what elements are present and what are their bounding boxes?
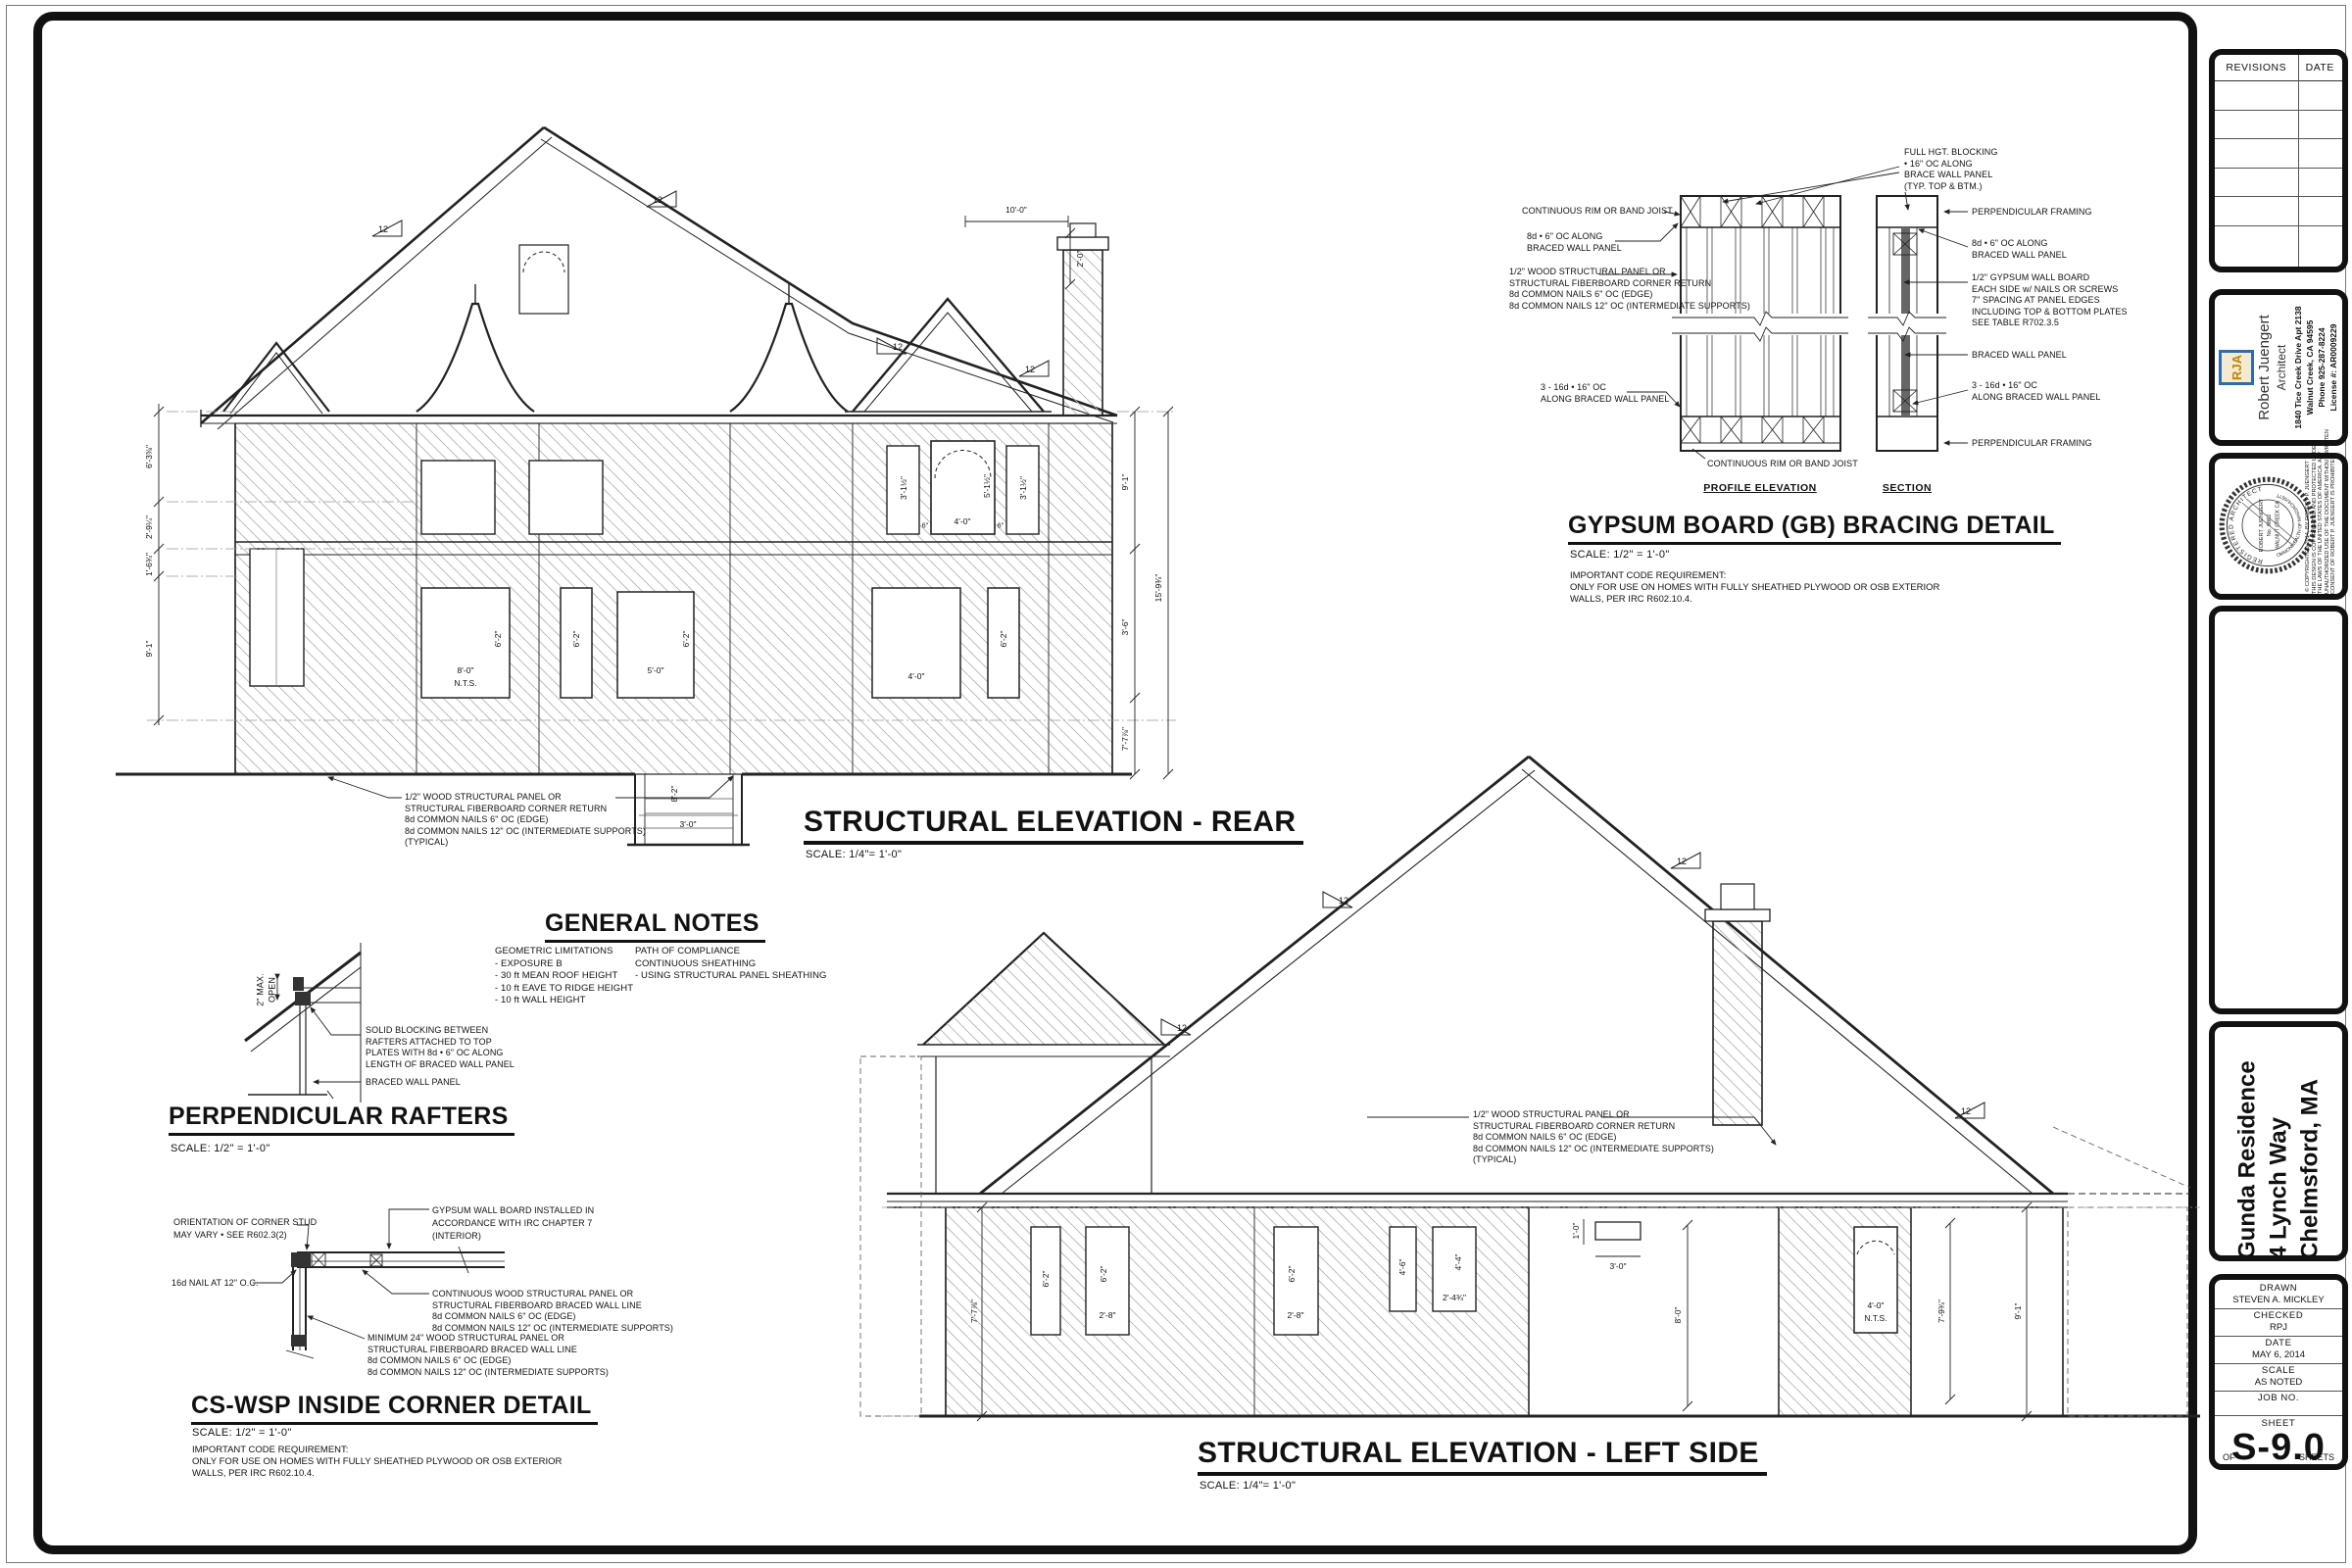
gb-annotation: BRACED WALL PANEL <box>1972 350 2067 362</box>
gypsum-detail-scale: SCALE: 1/2" = 1'-0" <box>1570 549 1670 561</box>
gypsum-detail-title: GYPSUM BOARD (GB) BRACING DETAIL <box>1568 512 2061 545</box>
svg-text:ROBERT JUENGERT: ROBERT JUENGERT <box>2259 498 2265 552</box>
revision-row <box>2215 110 2342 139</box>
gb-annotation: 3 - 16d • 16" OCALONG BRACED WALL PANEL <box>1972 380 2101 403</box>
dim-label: 9'-1" <box>1120 474 1130 491</box>
architect-address: 1840 Tice Creek Drive Apt 2138 <box>2293 306 2303 428</box>
dim-label: 8'-0" <box>1673 1307 1683 1324</box>
dim-label: 6" <box>922 523 928 530</box>
copyright-note: © COPYRIGHTED 2014, BY ROBERT P. JUENGER… <box>2305 459 2344 594</box>
architect-role: Architect <box>2275 345 2288 391</box>
cswsp-code-note: IMPORTANT CODE REQUIREMENT:ONLY FOR USE … <box>192 1445 562 1480</box>
date-header: DATE <box>2298 62 2343 73</box>
architect-logo: RJA <box>2219 350 2254 385</box>
gypsum-code-note: IMPORTANT CODE REQUIREMENT:ONLY FOR USE … <box>1570 570 1939 606</box>
sheets-label: SHEETS <box>2299 1452 2334 1462</box>
revision-row <box>2215 225 2342 255</box>
dim-label: 4'-0" <box>955 516 971 526</box>
corner-return-note: 1/2" WOOD STRUCTURAL PANEL ORSTRUCTURAL … <box>405 792 646 849</box>
revisions-table: REVISIONS DATE <box>2209 49 2348 272</box>
architect-phone: Phone 925-287-8224 <box>2317 327 2327 407</box>
left-elevation-scale: SCALE: 1/4"= 1'-0" <box>1200 1480 1296 1492</box>
dim-label: 15'-9¾" <box>1153 574 1163 603</box>
dim-label: 3'-1½" <box>899 476 908 500</box>
dim-label: 7'-7⅞" <box>969 1299 979 1323</box>
svg-text:12: 12 <box>893 342 903 352</box>
dim-label: 2'-9¼" <box>144 515 154 539</box>
dim-label: N.T.S. <box>454 678 476 688</box>
dim-label: 8'-0" <box>458 665 474 675</box>
seal-block: REGISTERED ARCHITECT COMMONWEALTH OF MAS… <box>2209 453 2348 600</box>
left-elevation-title: STRUCTURAL ELEVATION - LEFT SIDE <box>1198 1437 1767 1476</box>
left-elevation-drawing: 12 12 12 12 <box>843 666 2205 1441</box>
dim-label: 1'-0" <box>1571 1223 1581 1240</box>
cswsp-scale: SCALE: 1/2" = 1'-0" <box>192 1427 292 1439</box>
dim-label: 3'-0" <box>680 819 697 829</box>
dim-label: 3'-1½" <box>1018 476 1028 500</box>
cswsp-annotation: MINIMUM 24" WOOD STRUCTURAL PANEL ORSTRU… <box>367 1333 609 1378</box>
dim-label: N.T.S. <box>1864 1313 1886 1323</box>
svg-text:12: 12 <box>1677 857 1687 866</box>
architect-block: RJA Robert Juengert Architect 1840 Tice … <box>2209 289 2348 446</box>
dim-label: 6'-2" <box>1099 1266 1108 1283</box>
cswsp-title: CS-WSP INSIDE CORNER DETAIL <box>191 1392 598 1425</box>
cswsp-annotation: ORIENTATION OF CORNER STUDMAY VARY • SEE… <box>173 1216 317 1242</box>
drawn-value: STEVEN A. MICKLEY <box>2215 1295 2342 1305</box>
gb-annotation: FULL HGT. BLOCKING• 16" OC ALONGBRACE WA… <box>1904 147 1998 192</box>
gb-annotation: 1/2" GYPSUM WALL BOARDEACH SIDE w/ NAILS… <box>1972 272 2128 329</box>
gb-annotation: CONTINUOUS RIM OR BAND JOIST <box>1707 459 1858 470</box>
dim-label: 6'-2" <box>571 631 581 648</box>
dim-label: 5'-0" <box>648 665 664 675</box>
general-notes-col2: PATH OF COMPLIANCECONTINUOUS SHEATHING- … <box>635 946 827 983</box>
date-value: MAY 6, 2014 <box>2215 1349 2342 1360</box>
architect-seal: REGISTERED ARCHITECT COMMONWEALTH OF MAS… <box>2217 474 2319 576</box>
revision-row <box>2215 196 2342 225</box>
checked-label: CHECKED <box>2215 1310 2342 1321</box>
perp-annotation: 2" MAX.OPEN <box>256 973 278 1005</box>
dim-label: 6'-2" <box>493 631 503 648</box>
svg-text:12: 12 <box>1177 1023 1187 1033</box>
drawing-sheet: { "shared": { "pitch": "12", "corner_not… <box>0 0 2352 1568</box>
cswsp-annotation: 16d NAIL AT 12" O.C. <box>171 1278 259 1290</box>
dim-label: 6'-3⅜" <box>144 445 154 468</box>
gb-annotation: 8d • 6" OC ALONGBRACED WALL PANEL <box>1972 238 2067 261</box>
gb-annotation: 3 - 16d • 16" OCALONG BRACED WALL PANEL <box>1541 382 1670 405</box>
architect-name: Robert Juengert <box>2256 315 2273 420</box>
architect-city: Walnut Creek, CA 94595 <box>2305 320 2315 416</box>
dim-label: 6" <box>998 523 1004 530</box>
of-label: OF <box>2223 1452 2235 1462</box>
dim-label: 9'-1" <box>144 641 154 658</box>
dim-label: 4'-0" <box>1868 1300 1885 1310</box>
project-address: 4 Lynch Way <box>2263 1117 2294 1259</box>
gb-annotation: PERPENDICULAR FRAMING <box>1972 438 2092 450</box>
gb-annotation: 1/2" WOOD STRUCTURAL PANEL ORSTRUCTURAL … <box>1509 267 1750 312</box>
profile-elevation-label: PROFILE ELEVATION <box>1703 482 1816 494</box>
section-label: SECTION <box>1883 482 1932 494</box>
spare-block <box>2209 606 2348 1014</box>
dim-label: 6'-2" <box>999 631 1008 648</box>
dim-label: 8'-2" <box>669 786 679 803</box>
dim-label: 10'-0" <box>1005 205 1027 215</box>
checked-value: RPJ <box>2215 1322 2342 1333</box>
perpendicular-rafters-title: PERPENDICULAR RAFTERS <box>169 1102 514 1136</box>
perp-annotation: BRACED WALL PANEL <box>366 1077 461 1089</box>
job-label: JOB NO. <box>2215 1393 2342 1403</box>
dim-label: 7'-9¾" <box>1936 1299 1946 1323</box>
dim-label: 6'-2" <box>1287 1266 1297 1283</box>
perp-annotation: SOLID BLOCKING BETWEENRAFTERS ATTACHED T… <box>366 1025 514 1070</box>
dim-label: 4'-6" <box>1397 1259 1407 1276</box>
gb-annotation: 8d • 6" OC ALONGBRACED WALL PANEL <box>1527 231 1622 254</box>
revisions-header: REVISIONS <box>2215 62 2298 73</box>
drawn-label: DRAWN <box>2215 1283 2342 1294</box>
svg-text:12: 12 <box>1025 365 1035 374</box>
svg-text:12: 12 <box>1961 1106 1971 1116</box>
pitch-marks: 12 12 12 12 <box>1161 853 1984 1118</box>
sheet-number: S-9.0 <box>2215 1427 2342 1469</box>
date-label: DATE <box>2215 1338 2342 1348</box>
dim-label: 4'-4" <box>1453 1254 1463 1271</box>
scale-value: AS NOTED <box>2215 1377 2342 1388</box>
svg-text:12: 12 <box>1339 896 1348 906</box>
dim-label: 3'-0" <box>1610 1261 1627 1271</box>
gb-annotation: CONTINUOUS RIM OR BAND JOIST <box>1522 206 1673 218</box>
svg-text:No. 9862: No. 9862 <box>2267 514 2273 537</box>
project-name: Gunda Residence <box>2231 1060 2263 1259</box>
dim-label: 3'-6" <box>1120 619 1130 636</box>
dim-label: 2'-0" <box>1075 251 1085 268</box>
project-city: Chelmsford, MA <box>2294 1078 2326 1258</box>
revision-row <box>2215 138 2342 168</box>
perpendicular-rafters-scale: SCALE: 1/2" = 1'-0" <box>171 1143 270 1154</box>
dim-label: 5'-1½" <box>982 474 992 498</box>
corner-return-note: 1/2" WOOD STRUCTURAL PANEL ORSTRUCTURAL … <box>1473 1109 1714 1166</box>
architect-license: License #: AR0009229 <box>2328 324 2338 412</box>
dim-label: 2'-4¾" <box>1443 1293 1466 1302</box>
project-block: Gunda Residence 4 Lynch Way Chelmsford, … <box>2209 1021 2348 1261</box>
revision-row <box>2215 168 2342 197</box>
gb-annotation: PERPENDICULAR FRAMING <box>1972 207 2092 219</box>
svg-text:12: 12 <box>653 195 662 205</box>
pitch-marks: 12 12 12 12 <box>372 191 1049 376</box>
revision-row <box>2215 81 2342 110</box>
cswsp-annotation: CONTINUOUS WOOD STRUCTURAL PANEL ORSTRUC… <box>432 1289 673 1334</box>
dim-label: 2'-8" <box>1288 1310 1304 1320</box>
dim-label: 2'-8" <box>1100 1310 1116 1320</box>
cswsp-annotation: GYPSUM WALL BOARD INSTALLED INACCORDANCE… <box>432 1204 594 1243</box>
dim-label: 6'-2" <box>681 631 691 648</box>
scale-label: SCALE <box>2215 1365 2342 1376</box>
svg-text:12: 12 <box>378 224 388 234</box>
dim-label: 9'-1" <box>2013 1303 2023 1320</box>
dim-label: 6'-2" <box>1041 1271 1051 1288</box>
sheet-info-block: DRAWN STEVEN A. MICKLEY CHECKED RPJ DATE… <box>2209 1274 2348 1470</box>
dim-label: 1'-6¾" <box>144 553 154 576</box>
